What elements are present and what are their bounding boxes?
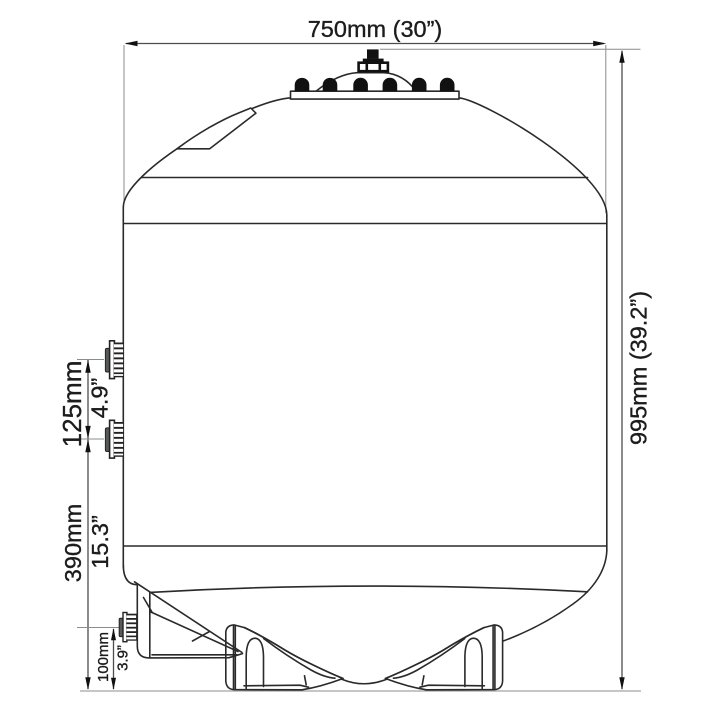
svg-text:100mm: 100mm bbox=[95, 632, 112, 682]
svg-text:995mm (39.2”): 995mm (39.2”) bbox=[626, 291, 652, 445]
svg-text:390mm: 390mm bbox=[60, 504, 86, 582]
svg-text:3.9”: 3.9” bbox=[115, 645, 132, 671]
svg-text:125mm: 125mm bbox=[57, 361, 87, 448]
svg-text:750mm (30”): 750mm (30”) bbox=[308, 16, 443, 42]
svg-text:4.9”: 4.9” bbox=[87, 378, 113, 419]
svg-text:15.3”: 15.3” bbox=[87, 515, 113, 569]
